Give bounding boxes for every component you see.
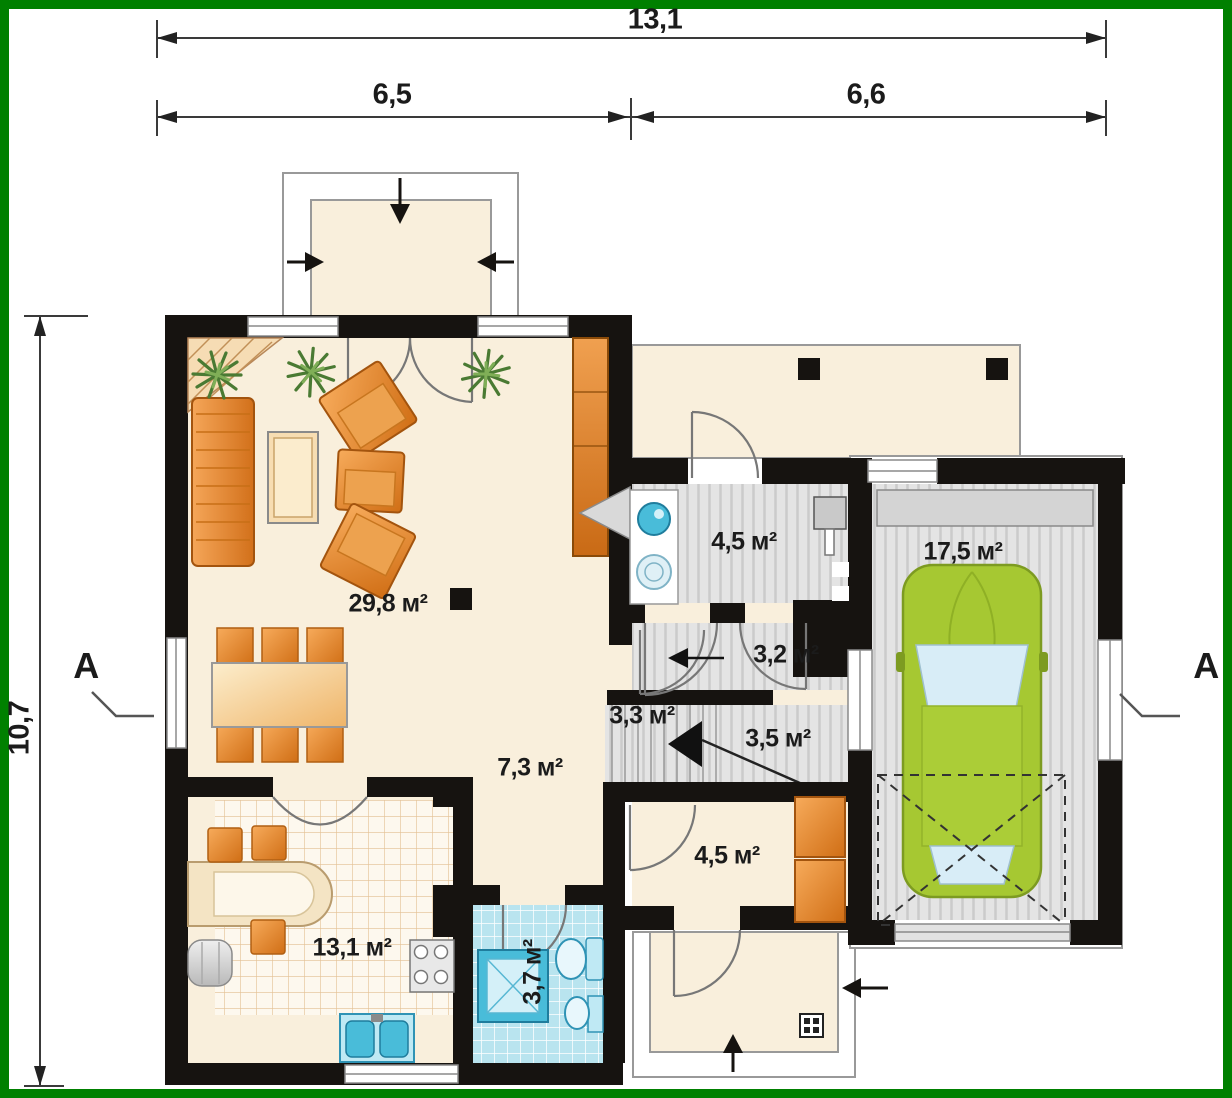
window-icon: [478, 317, 568, 336]
section-mark-left-icon: [92, 692, 154, 716]
room-label-hall: 7,3 м²: [497, 754, 563, 783]
stool-icon: [252, 826, 286, 860]
dining-set-icon: [212, 628, 347, 762]
basin-icon: [638, 503, 670, 535]
floor-plan-canvas: 13,1 6,5 6,6 10,7 A A 29,8 м² 4,5 м² 17,…: [0, 0, 1232, 1098]
room-label-kitchen: 13,1 м²: [313, 934, 392, 963]
water-heater-icon: [188, 940, 232, 986]
room-label-room-lower: 4,5 м²: [694, 842, 760, 871]
stool-icon: [251, 920, 285, 954]
porch-column-icon: [798, 358, 820, 380]
window-icon: [848, 650, 872, 750]
drain-icon: [800, 1014, 823, 1037]
floor-plan-drawing: [0, 0, 1232, 1098]
dim-right-width: 6,6: [847, 79, 886, 112]
cabinet-icon: [795, 860, 845, 922]
cabinet-icon: [795, 797, 845, 857]
room-label-living: 29,8 м²: [349, 590, 428, 619]
dim-total-width: 13,1: [628, 4, 682, 37]
toilet-icon: [556, 938, 603, 980]
window-icon: [345, 1065, 458, 1083]
room-label-bathroom-upper: 4,5 м²: [711, 528, 777, 557]
dim-left-width: 6,5: [373, 79, 412, 112]
stove-icon: [410, 940, 454, 992]
armchair-icon: [335, 449, 404, 512]
room-label-stairs: 3,3 м²: [609, 702, 675, 731]
section-label-left: A: [73, 645, 99, 687]
room-label-corridor: 3,2 м²: [753, 641, 819, 670]
room-label-landing: 3,5 м²: [745, 725, 811, 754]
room-label-garage: 17,5 м²: [924, 538, 1003, 567]
porch-column-icon: [986, 358, 1008, 380]
section-mark-right-icon: [1120, 694, 1180, 716]
kitchen-sink-icon: [340, 1014, 414, 1062]
rear-terrace: [633, 932, 855, 1077]
stool-icon: [208, 828, 242, 862]
basin-icon: [565, 996, 603, 1032]
washing-machine-icon: [637, 555, 671, 589]
window-icon: [1098, 640, 1122, 760]
coffee-table-icon: [268, 432, 318, 523]
window-icon: [167, 638, 186, 748]
garage-door-icon: [895, 924, 1070, 941]
lower-room-cabinets: [795, 797, 845, 922]
section-label-right: A: [1193, 645, 1219, 687]
column-icon: [450, 588, 472, 610]
window-icon: [868, 460, 937, 482]
sofa-icon: [192, 398, 254, 566]
dim-side-height: 10,7: [4, 701, 37, 755]
room-label-bathroom-lower: 3,7 м²: [519, 939, 548, 1005]
car-icon: [896, 565, 1048, 897]
covered-porch: [632, 345, 1020, 458]
window-icon: [248, 317, 338, 336]
